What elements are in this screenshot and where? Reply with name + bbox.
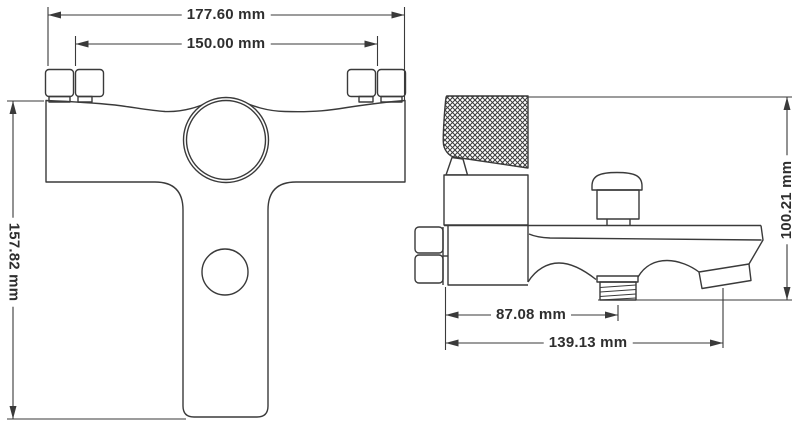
- dim-label-overall-width: 177.60 mm: [182, 7, 271, 24]
- thread-lines: [600, 285, 636, 300]
- spout-underside-left: [528, 263, 596, 282]
- dim-label-overall-height-front: 157.82 mm: [5, 218, 22, 307]
- knurled-handle: [443, 96, 528, 168]
- side-view: [415, 96, 763, 300]
- mount-foot-right-1: [359, 97, 373, 103]
- faucet-dimension-drawing: 177.60 mm 150.00 mm 157.82 mm 100.21 mm …: [0, 0, 800, 432]
- mount-nut-left-2: [76, 70, 104, 97]
- spout-front-edge: [529, 234, 762, 240]
- handle-neck: [446, 158, 468, 176]
- dim-label-mounting-centers: 150.00 mm: [182, 36, 271, 53]
- spout-underside-right: [638, 261, 699, 278]
- valve-body-upper: [444, 175, 528, 225]
- spout-tip-edge: [749, 226, 763, 265]
- wall-nut-top: [415, 227, 443, 253]
- dim-label-overall-height-side: 100.21 mm: [779, 156, 796, 245]
- mount-nut-right-1: [348, 70, 376, 97]
- dim-label-outlet-offset: 87.08 mm: [491, 307, 571, 324]
- wall-nut-bottom: [415, 255, 443, 283]
- mount-nut-left-1: [46, 70, 74, 97]
- mount-nut-right-2: [378, 70, 406, 97]
- diverter-knob-stem: [607, 219, 630, 226]
- dim-label-overall-depth: 139.13 mm: [544, 335, 633, 352]
- valve-body-lower: [448, 225, 528, 285]
- diverter-knob-cap: [592, 173, 642, 191]
- diverter-knob-body: [597, 190, 639, 219]
- spout-aerator: [699, 264, 751, 289]
- drawing-linework: [0, 0, 800, 432]
- mount-foot-left-2: [78, 97, 92, 103]
- front-view: [46, 70, 406, 418]
- stem-circle: [202, 249, 248, 295]
- outlet-collar: [597, 276, 638, 282]
- dial-outer-circle: [184, 98, 269, 183]
